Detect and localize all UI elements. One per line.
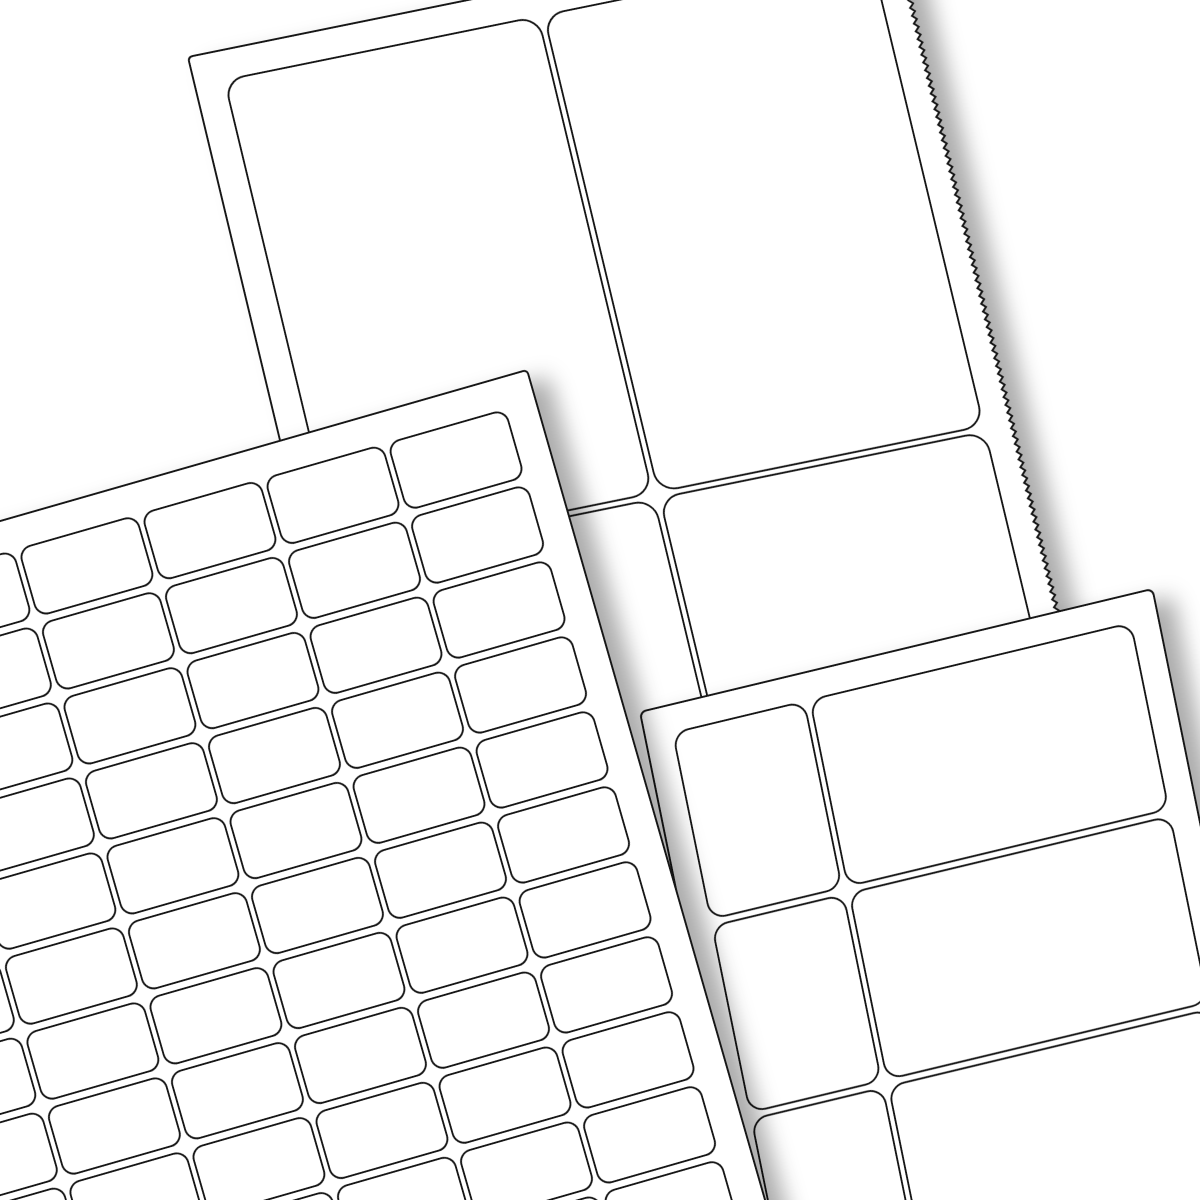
label-sheets-illustration — [0, 0, 1200, 1200]
label-sheets-product-photo — [0, 0, 1200, 1200]
